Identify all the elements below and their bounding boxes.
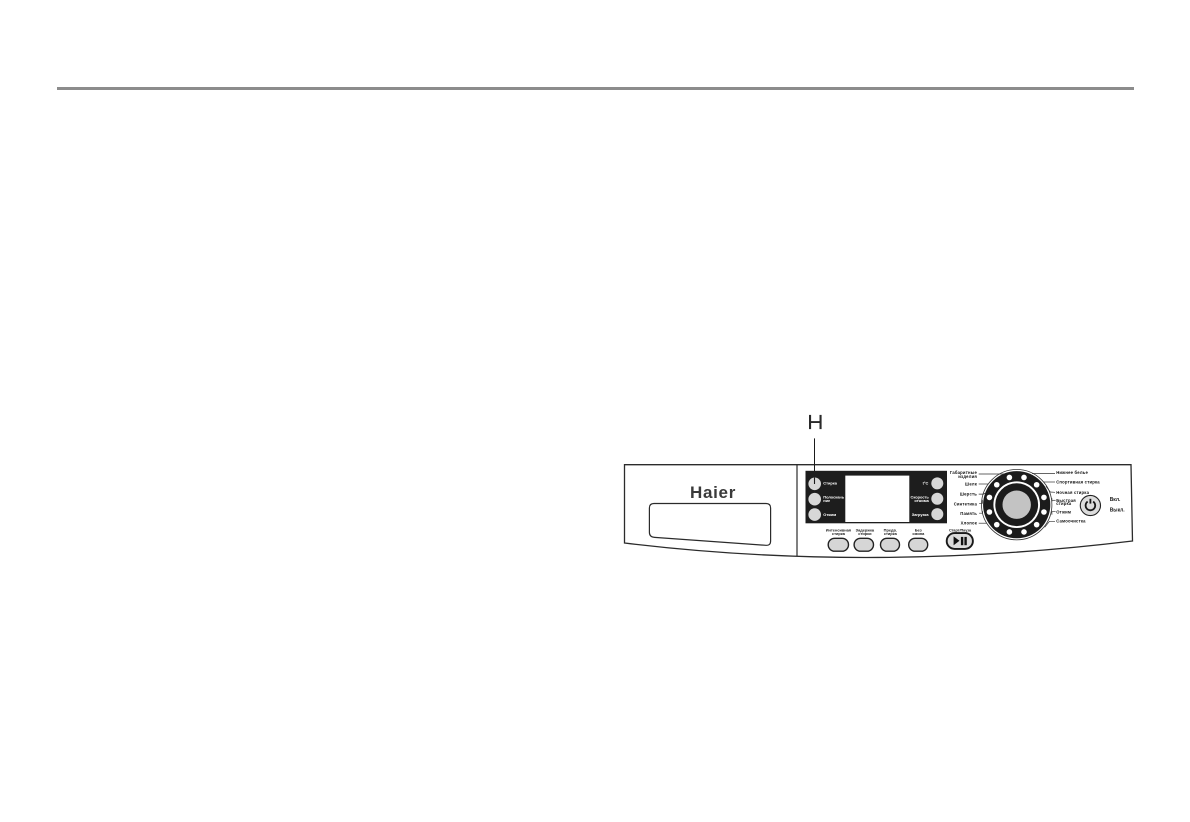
svg-text:стирка: стирка [1056, 501, 1072, 506]
svg-text:Стирка: Стирка [823, 481, 837, 486]
svg-text:ние: ние [823, 498, 831, 503]
svg-text:отжима: отжима [914, 498, 929, 503]
svg-text:Память: Память [960, 511, 977, 516]
svg-text:Самоочистка: Самоочистка [1056, 519, 1086, 524]
svg-text:стирки: стирки [858, 531, 872, 536]
svg-text:Выкл.: Выкл. [1110, 507, 1126, 513]
svg-text:Отжим: Отжим [823, 512, 836, 517]
svg-text:Шелк: Шелк [965, 482, 978, 487]
svg-text:Отжим: Отжим [1056, 509, 1071, 514]
svg-text:смина: смина [912, 531, 925, 536]
svg-text:Нижнее белье: Нижнее белье [1056, 470, 1088, 475]
svg-text:Вкл.: Вкл. [1110, 497, 1121, 503]
svg-text:Синтетика: Синтетика [954, 501, 978, 506]
svg-text:Шерсть: Шерсть [960, 491, 977, 496]
svg-text:Ночная стирка: Ночная стирка [1056, 490, 1089, 495]
svg-text:Загрузка: Загрузка [912, 512, 930, 517]
svg-text:Спортивная стирка: Спортивная стирка [1056, 480, 1100, 485]
svg-text:Haier: Haier [690, 483, 736, 502]
svg-text:изделия: изделия [958, 474, 977, 479]
svg-text:Хлопок: Хлопок [961, 521, 978, 526]
svg-text:стирка: стирка [832, 531, 846, 536]
svg-text:t°C: t°C [923, 481, 929, 486]
svg-text:Старт/Пауза: Старт/Пауза [949, 528, 972, 532]
svg-text:стирка: стирка [884, 531, 898, 536]
